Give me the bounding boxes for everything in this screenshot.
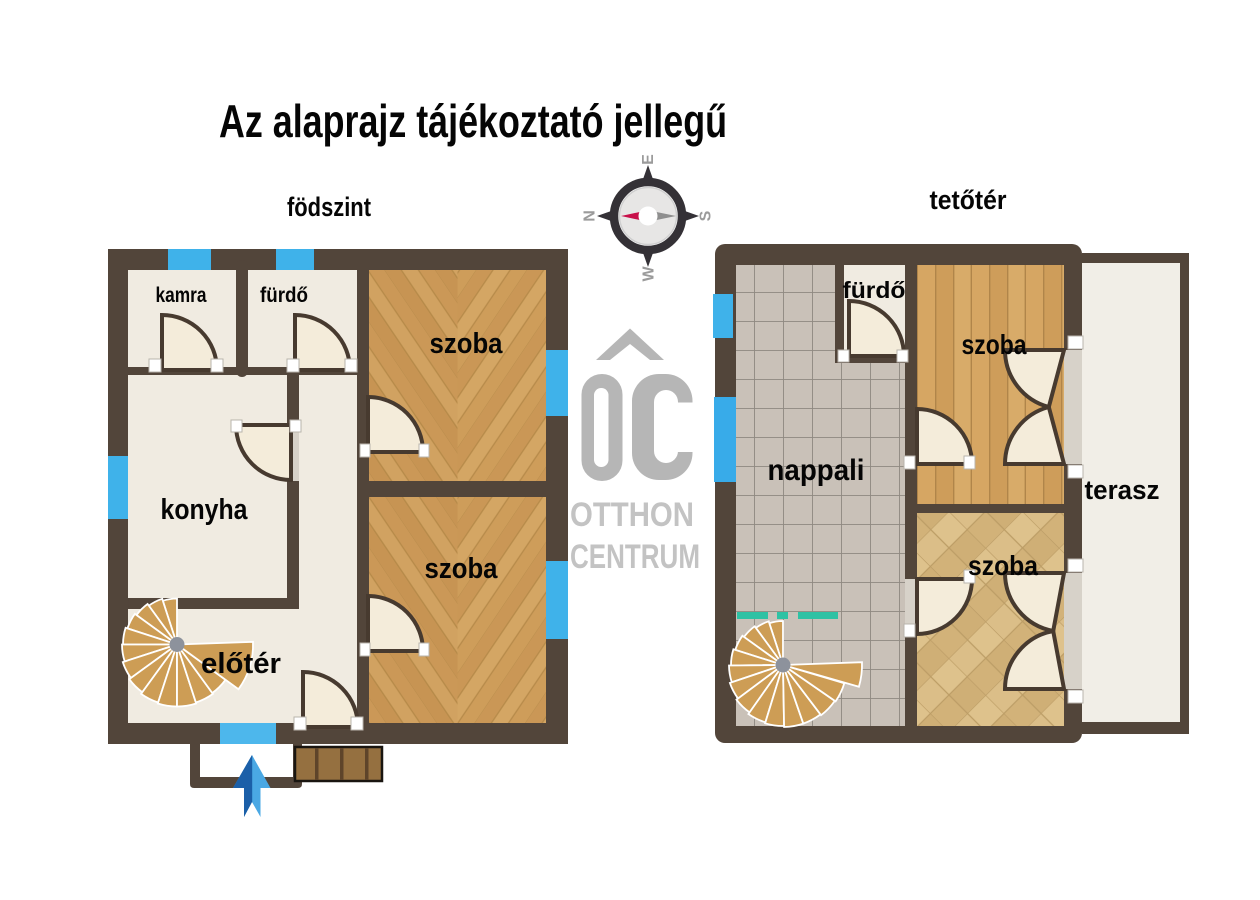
- svg-text:W: W: [641, 266, 658, 282]
- svg-text:N: N: [582, 210, 599, 222]
- svg-text:nappali: nappali: [768, 454, 865, 487]
- svg-text:előtér: előtér: [201, 648, 281, 680]
- svg-text:E: E: [640, 154, 657, 165]
- svg-text:tetőtér: tetőtér: [930, 185, 1007, 215]
- svg-text:kamra: kamra: [156, 284, 207, 307]
- svg-text:terasz: terasz: [1085, 475, 1160, 505]
- svg-text:konyha: konyha: [161, 494, 249, 526]
- svg-text:szoba: szoba: [430, 328, 504, 360]
- svg-text:szoba: szoba: [968, 550, 1038, 581]
- svg-text:szoba: szoba: [425, 553, 499, 585]
- svg-text:fürdő: fürdő: [260, 284, 308, 307]
- svg-text:fürdő: fürdő: [843, 277, 906, 303]
- svg-text:szoba: szoba: [962, 329, 1027, 360]
- svg-text:CENTRUM: CENTRUM: [570, 538, 700, 576]
- svg-text:S: S: [698, 210, 715, 221]
- svg-text:födszint: födszint: [287, 192, 371, 222]
- svg-text:OTTHON: OTTHON: [570, 496, 694, 534]
- svg-text:Az alaprajz tájékoztató jelleg: Az alaprajz tájékoztató jellegű: [219, 95, 727, 147]
